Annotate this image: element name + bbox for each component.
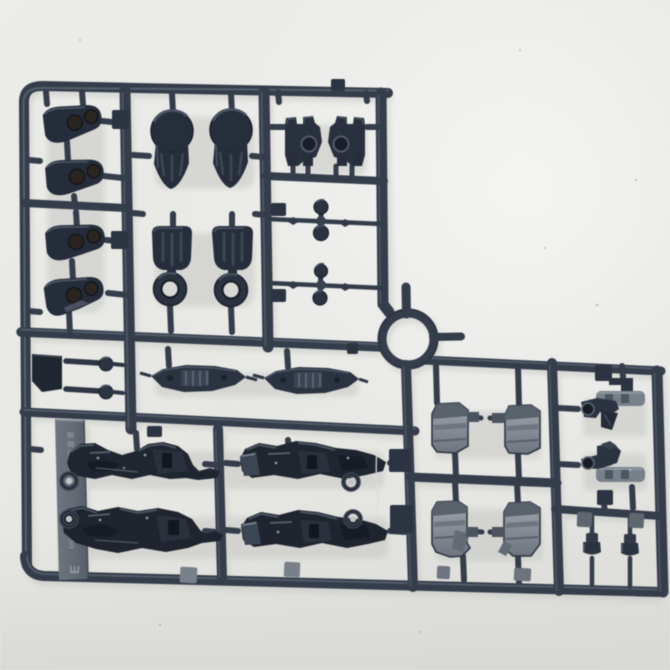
svg-text:E: E	[67, 565, 82, 575]
